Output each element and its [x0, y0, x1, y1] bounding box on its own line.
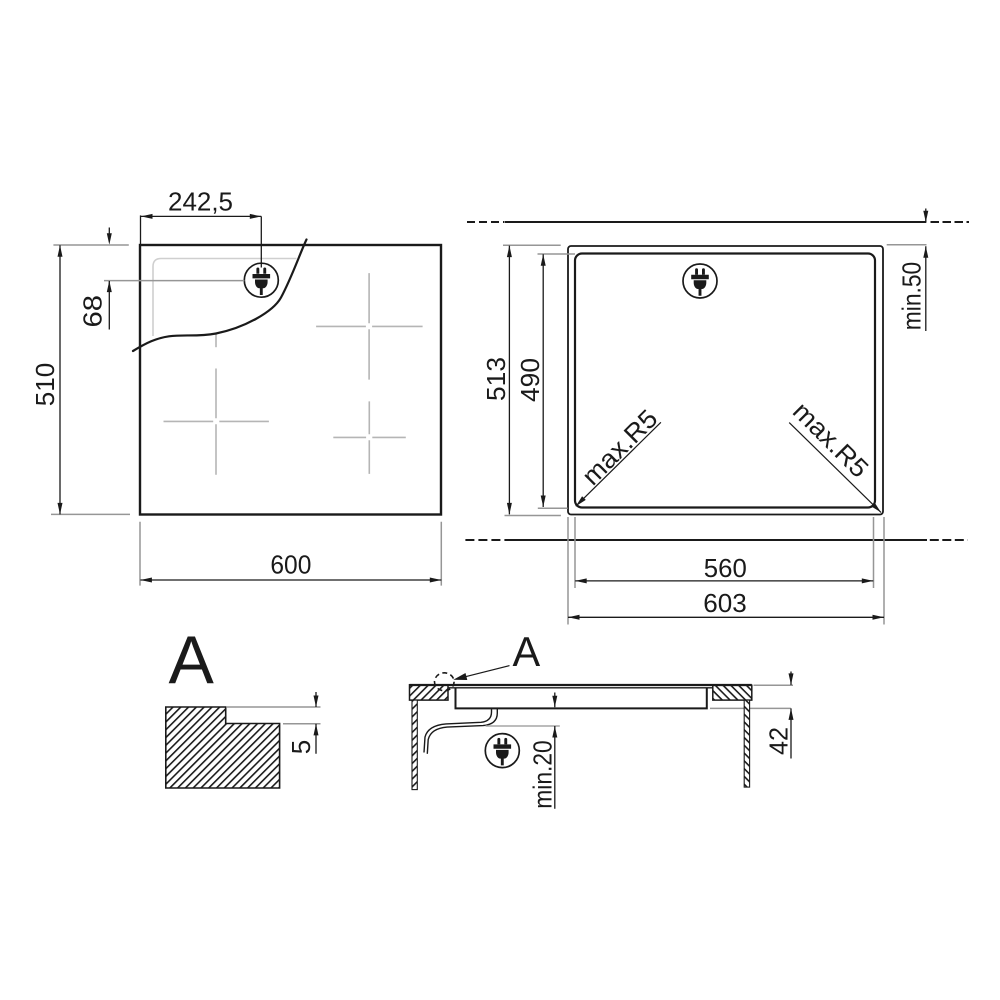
svg-text:5: 5	[286, 740, 316, 755]
svg-text:min.50: min.50	[897, 262, 927, 331]
svg-text:510: 510	[30, 363, 60, 407]
svg-text:max.R5: max.R5	[576, 403, 664, 491]
svg-text:603: 603	[703, 588, 747, 618]
svg-text:A: A	[513, 628, 541, 675]
svg-text:min.20: min.20	[528, 740, 558, 809]
svg-text:600: 600	[270, 550, 311, 580]
svg-text:A: A	[169, 622, 215, 698]
svg-text:242,5: 242,5	[168, 187, 233, 217]
svg-text:max.R5: max.R5	[787, 396, 875, 484]
svg-text:560: 560	[704, 553, 747, 583]
svg-text:42: 42	[764, 727, 794, 755]
svg-text:68: 68	[77, 295, 107, 328]
svg-text:513: 513	[481, 357, 511, 401]
svg-text:490: 490	[515, 358, 545, 402]
